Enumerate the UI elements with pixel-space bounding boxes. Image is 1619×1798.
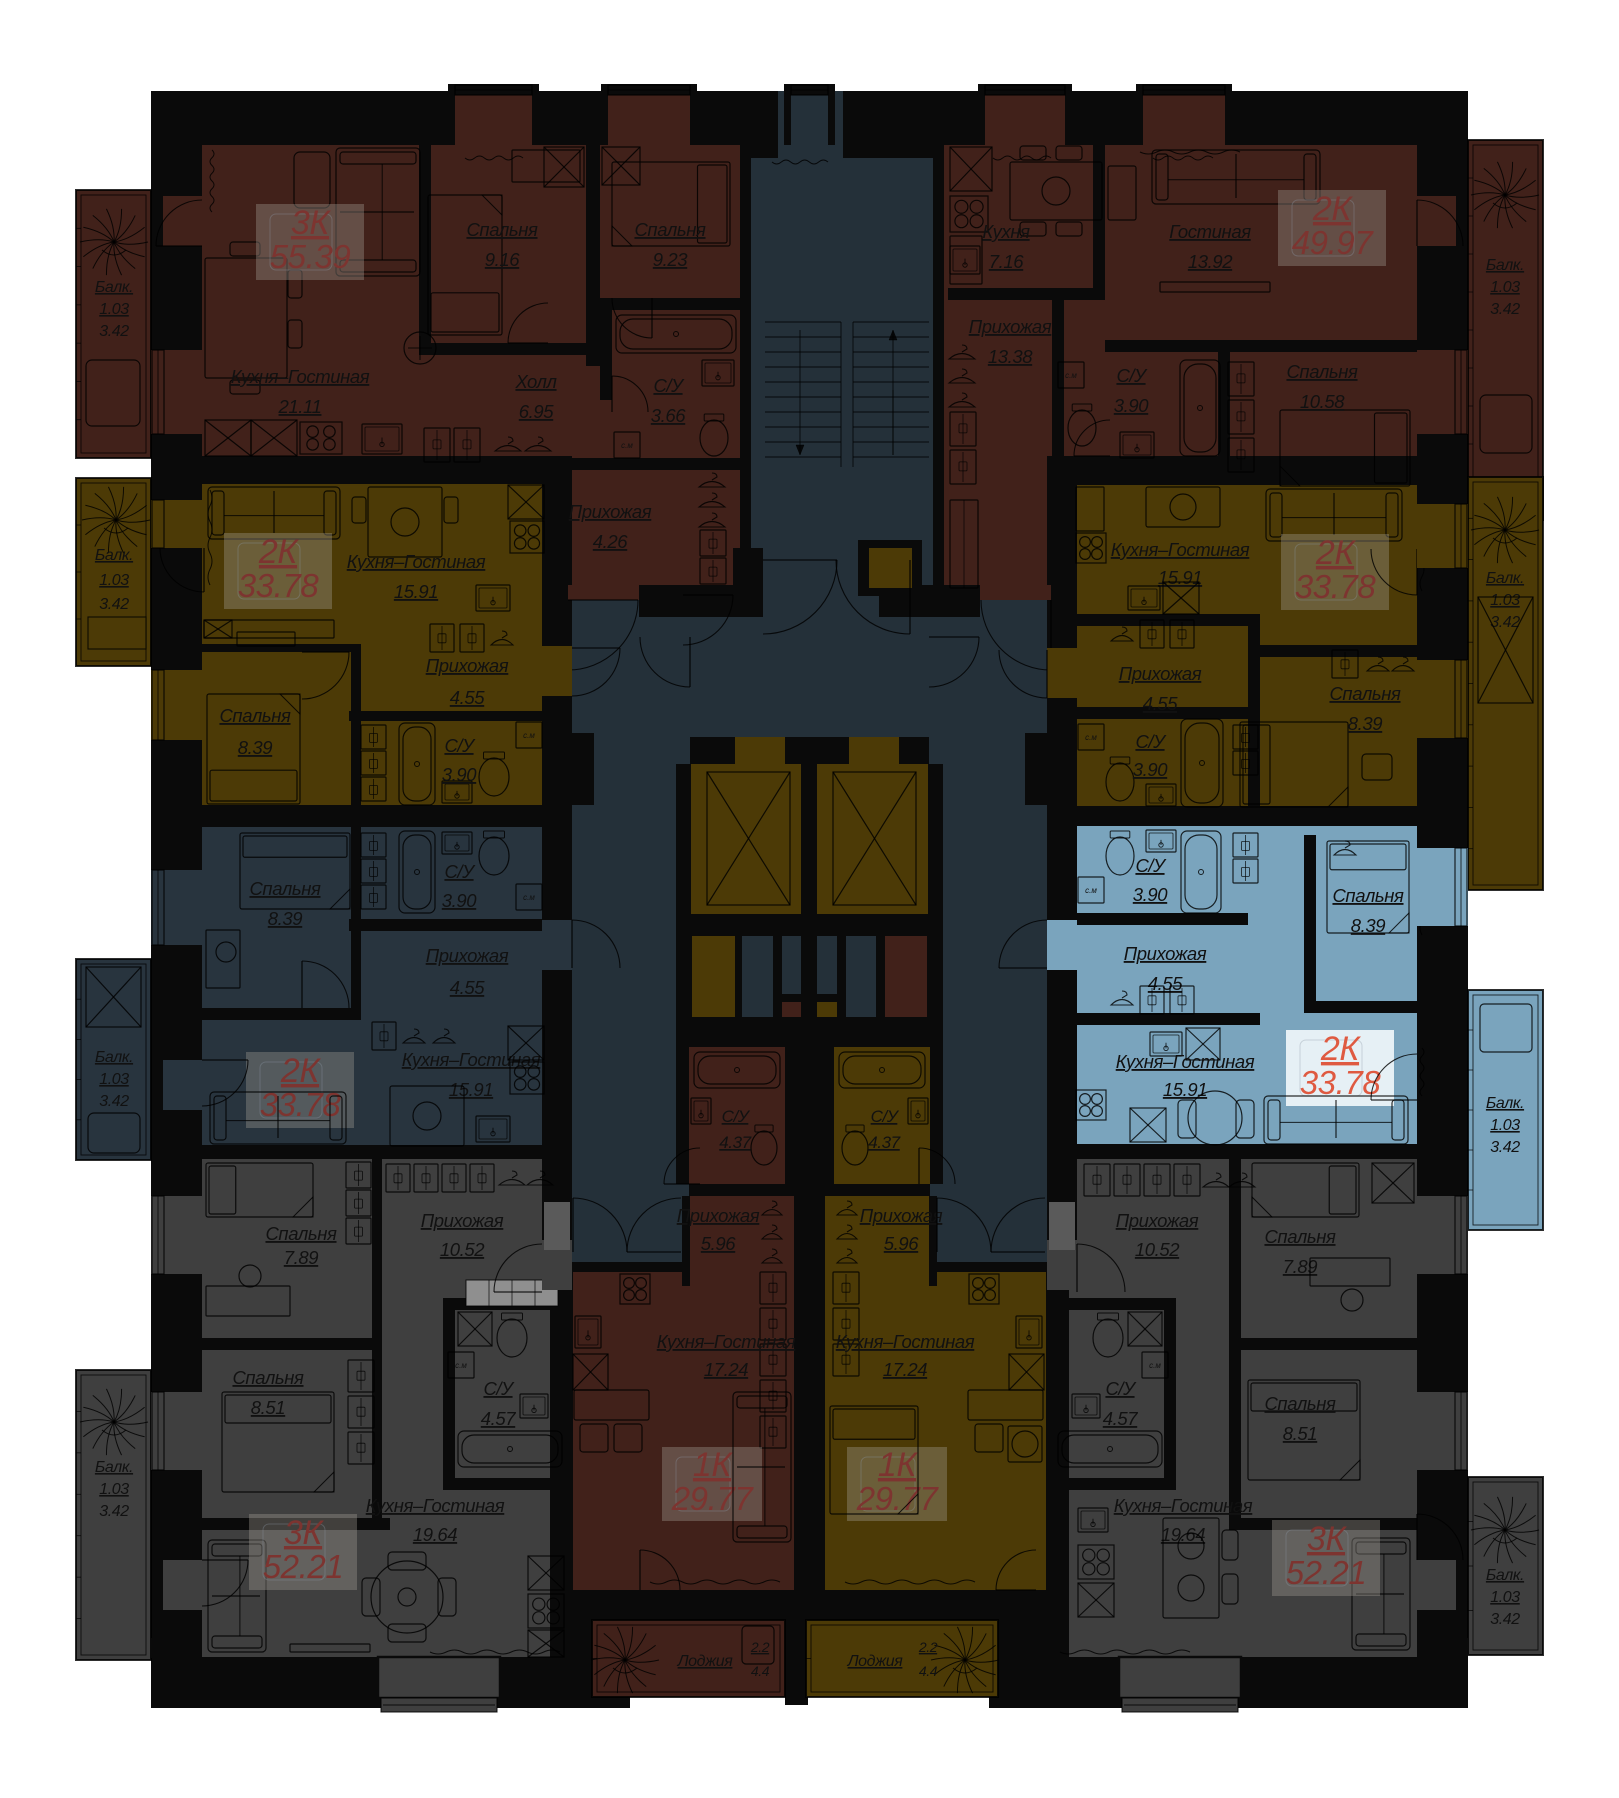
svg-text:3.42: 3.42 bbox=[99, 1503, 129, 1520]
svg-text:3К: 3К bbox=[284, 1514, 325, 1552]
svg-text:с.м: с.м bbox=[1149, 1361, 1161, 1370]
svg-text:Кухня–Гостиная: Кухня–Гостиная bbox=[657, 1331, 796, 1352]
svg-text:9.16: 9.16 bbox=[485, 249, 521, 270]
svg-text:3.42: 3.42 bbox=[99, 596, 129, 613]
svg-text:3.90: 3.90 bbox=[1114, 395, 1150, 416]
svg-text:Прихожая: Прихожая bbox=[426, 655, 509, 676]
svg-text:С/У: С/У bbox=[444, 735, 476, 756]
svg-text:Кухня–Гостиная: Кухня–Гостиная bbox=[1114, 1495, 1253, 1516]
svg-text:с.м: с.м bbox=[1085, 733, 1097, 742]
svg-text:1.03: 1.03 bbox=[99, 1071, 129, 1088]
svg-text:3.66: 3.66 bbox=[651, 405, 687, 426]
svg-text:29.77: 29.77 bbox=[671, 1480, 755, 1517]
svg-text:Спальня: Спальня bbox=[265, 1223, 337, 1244]
svg-text:Балк.: Балк. bbox=[95, 547, 133, 564]
svg-text:33.78: 33.78 bbox=[238, 567, 320, 604]
svg-text:Балк.: Балк. bbox=[1486, 570, 1524, 587]
svg-text:Спальня: Спальня bbox=[466, 219, 538, 240]
svg-text:9.23: 9.23 bbox=[653, 249, 689, 270]
svg-text:4.57: 4.57 bbox=[1103, 1408, 1139, 1429]
svg-text:7.89: 7.89 bbox=[284, 1247, 319, 1268]
svg-text:4.4: 4.4 bbox=[919, 1663, 938, 1679]
svg-text:1К: 1К bbox=[693, 1446, 734, 1484]
svg-text:1.03: 1.03 bbox=[1490, 1117, 1520, 1134]
svg-text:Балк.: Балк. bbox=[95, 279, 133, 296]
svg-text:Спальня: Спальня bbox=[219, 705, 291, 726]
svg-text:19.64: 19.64 bbox=[413, 1524, 457, 1545]
svg-text:2.2: 2.2 bbox=[750, 1639, 770, 1655]
svg-text:6.95: 6.95 bbox=[519, 401, 555, 422]
svg-text:Балк.: Балк. bbox=[95, 1459, 133, 1476]
svg-text:Спальня: Спальня bbox=[1264, 1393, 1336, 1414]
svg-text:21.11: 21.11 bbox=[278, 396, 322, 417]
svg-text:3.90: 3.90 bbox=[442, 764, 478, 785]
svg-text:1.03: 1.03 bbox=[99, 572, 129, 589]
svg-text:3.42: 3.42 bbox=[99, 1093, 129, 1110]
svg-text:17.24: 17.24 bbox=[704, 1359, 748, 1380]
svg-text:с.м: с.м bbox=[1085, 886, 1097, 895]
svg-text:с.м: с.м bbox=[621, 441, 633, 450]
svg-text:4.55: 4.55 bbox=[1148, 973, 1184, 994]
svg-text:Спальня: Спальня bbox=[1264, 1226, 1336, 1247]
svg-text:3.42: 3.42 bbox=[1490, 1611, 1520, 1628]
svg-text:Спальня: Спальня bbox=[634, 219, 706, 240]
svg-text:4.55: 4.55 bbox=[1143, 693, 1179, 714]
svg-text:Прихожая: Прихожая bbox=[1119, 663, 1202, 684]
svg-text:5.96: 5.96 bbox=[701, 1233, 737, 1254]
svg-text:4.37: 4.37 bbox=[719, 1133, 751, 1152]
svg-text:Лоджия: Лоджия bbox=[847, 1653, 904, 1670]
svg-text:Кухня–Гостиная: Кухня–Гостиная bbox=[836, 1331, 975, 1352]
svg-text:2К: 2К bbox=[280, 1052, 322, 1090]
svg-text:Балк.: Балк. bbox=[1486, 1095, 1524, 1112]
svg-text:2К: 2К bbox=[1320, 1030, 1362, 1068]
svg-text:4.37: 4.37 bbox=[868, 1133, 900, 1152]
svg-text:Кухня: Кухня bbox=[982, 221, 1030, 242]
svg-text:Спальня: Спальня bbox=[1329, 683, 1401, 704]
svg-text:4.55: 4.55 bbox=[450, 977, 486, 998]
svg-text:15.91: 15.91 bbox=[1163, 1079, 1207, 1100]
svg-text:10.52: 10.52 bbox=[1135, 1239, 1180, 1260]
svg-text:Гостиная: Гостиная bbox=[1169, 221, 1251, 242]
svg-text:С/У: С/У bbox=[1135, 855, 1167, 876]
svg-text:Спальня: Спальня bbox=[1332, 885, 1404, 906]
svg-text:1.03: 1.03 bbox=[1490, 1589, 1520, 1606]
svg-text:1.03: 1.03 bbox=[99, 1481, 129, 1498]
svg-text:52.21: 52.21 bbox=[1286, 1554, 1367, 1591]
svg-text:с.м: с.м bbox=[455, 1361, 467, 1370]
svg-text:Кухня–Гостиная: Кухня–Гостиная bbox=[1116, 1051, 1255, 1072]
svg-text:1.03: 1.03 bbox=[1490, 592, 1520, 609]
svg-text:Балк.: Балк. bbox=[1486, 1567, 1524, 1584]
svg-text:3К: 3К bbox=[291, 204, 332, 242]
svg-text:Балк.: Балк. bbox=[95, 1049, 133, 1066]
svg-text:с.м: с.м bbox=[523, 731, 535, 740]
svg-text:52.21: 52.21 bbox=[263, 1548, 344, 1585]
svg-text:2К: 2К bbox=[258, 533, 300, 571]
svg-text:С/У: С/У bbox=[1116, 365, 1148, 386]
svg-text:Прихожая: Прихожая bbox=[426, 945, 509, 966]
svg-text:С/У: С/У bbox=[722, 1107, 751, 1126]
svg-text:Спальня: Спальня bbox=[1286, 361, 1358, 382]
svg-text:С/У: С/У bbox=[444, 861, 476, 882]
svg-text:3.90: 3.90 bbox=[442, 890, 478, 911]
svg-text:7.16: 7.16 bbox=[989, 251, 1025, 272]
svg-text:8.51: 8.51 bbox=[251, 1397, 285, 1418]
svg-text:С/У: С/У bbox=[1105, 1378, 1137, 1399]
svg-text:3.42: 3.42 bbox=[99, 323, 129, 340]
svg-text:Прихожая: Прихожая bbox=[1124, 943, 1207, 964]
svg-text:Холл: Холл bbox=[514, 371, 557, 392]
svg-text:8.39: 8.39 bbox=[1351, 915, 1386, 936]
svg-text:2К: 2К bbox=[1312, 190, 1354, 228]
svg-text:Прихожая: Прихожая bbox=[421, 1210, 504, 1231]
svg-text:3.90: 3.90 bbox=[1133, 759, 1169, 780]
svg-text:2К: 2К bbox=[1315, 534, 1357, 572]
svg-text:4.57: 4.57 bbox=[481, 1408, 517, 1429]
svg-text:13.92: 13.92 bbox=[1188, 251, 1233, 272]
svg-text:Кухня–Гостиная: Кухня–Гостиная bbox=[1111, 539, 1250, 560]
svg-text:8.39: 8.39 bbox=[1348, 713, 1383, 734]
svg-text:49.97: 49.97 bbox=[1292, 224, 1375, 261]
svg-text:3.42: 3.42 bbox=[1490, 301, 1520, 318]
svg-text:Прихожая: Прихожая bbox=[860, 1205, 943, 1226]
svg-text:с.м: с.м bbox=[1065, 371, 1077, 380]
svg-text:3.90: 3.90 bbox=[1133, 884, 1169, 905]
svg-text:17.24: 17.24 bbox=[883, 1359, 927, 1380]
svg-text:10.52: 10.52 bbox=[440, 1239, 485, 1260]
svg-text:4.4: 4.4 bbox=[751, 1663, 770, 1679]
svg-text:С/У: С/У bbox=[483, 1378, 515, 1399]
svg-text:Прихожая: Прихожая bbox=[969, 316, 1052, 337]
svg-text:15.91: 15.91 bbox=[449, 1079, 493, 1100]
svg-text:10.58: 10.58 bbox=[1300, 391, 1345, 412]
svg-text:Балк.: Балк. bbox=[1486, 257, 1524, 274]
svg-text:Кухня–Гостиная: Кухня–Гостиная bbox=[231, 366, 370, 387]
svg-text:1К: 1К bbox=[878, 1446, 919, 1484]
svg-text:4.55: 4.55 bbox=[450, 687, 486, 708]
svg-text:8.51: 8.51 bbox=[1283, 1423, 1317, 1444]
svg-text:Спальня: Спальня bbox=[232, 1367, 304, 1388]
svg-text:8.39: 8.39 bbox=[238, 737, 273, 758]
svg-text:Прихожая: Прихожая bbox=[569, 501, 652, 522]
svg-text:1.03: 1.03 bbox=[99, 301, 129, 318]
svg-text:7.89: 7.89 bbox=[1283, 1256, 1318, 1277]
svg-text:19.64: 19.64 bbox=[1161, 1524, 1205, 1545]
svg-text:Кухня–Гостиная: Кухня–Гостиная bbox=[347, 551, 486, 572]
svg-text:55.39: 55.39 bbox=[270, 238, 351, 275]
svg-text:3.42: 3.42 bbox=[1490, 1139, 1520, 1156]
svg-text:Прихожая: Прихожая bbox=[1116, 1210, 1199, 1231]
svg-text:13.38: 13.38 bbox=[988, 346, 1033, 367]
svg-text:3К: 3К bbox=[1307, 1520, 1348, 1558]
svg-text:1.03: 1.03 bbox=[1490, 279, 1520, 296]
svg-text:2.2: 2.2 bbox=[918, 1639, 938, 1655]
svg-text:Кухня–Гостиная: Кухня–Гостиная bbox=[366, 1495, 505, 1516]
svg-text:5.96: 5.96 bbox=[884, 1233, 920, 1254]
svg-text:с.м: с.м bbox=[523, 893, 535, 902]
svg-text:Прихожая: Прихожая bbox=[677, 1205, 760, 1226]
svg-text:С/У: С/У bbox=[1135, 731, 1167, 752]
svg-text:33.78: 33.78 bbox=[1295, 568, 1377, 605]
svg-text:8.39: 8.39 bbox=[268, 908, 303, 929]
svg-text:15.91: 15.91 bbox=[394, 581, 438, 602]
svg-text:29.77: 29.77 bbox=[856, 1480, 940, 1517]
svg-text:С/У: С/У bbox=[871, 1107, 900, 1126]
svg-text:С/У: С/У bbox=[653, 375, 685, 396]
svg-text:Лоджия: Лоджия bbox=[677, 1653, 734, 1670]
svg-text:4.26: 4.26 bbox=[593, 531, 629, 552]
svg-text:Спальня: Спальня bbox=[249, 878, 321, 899]
